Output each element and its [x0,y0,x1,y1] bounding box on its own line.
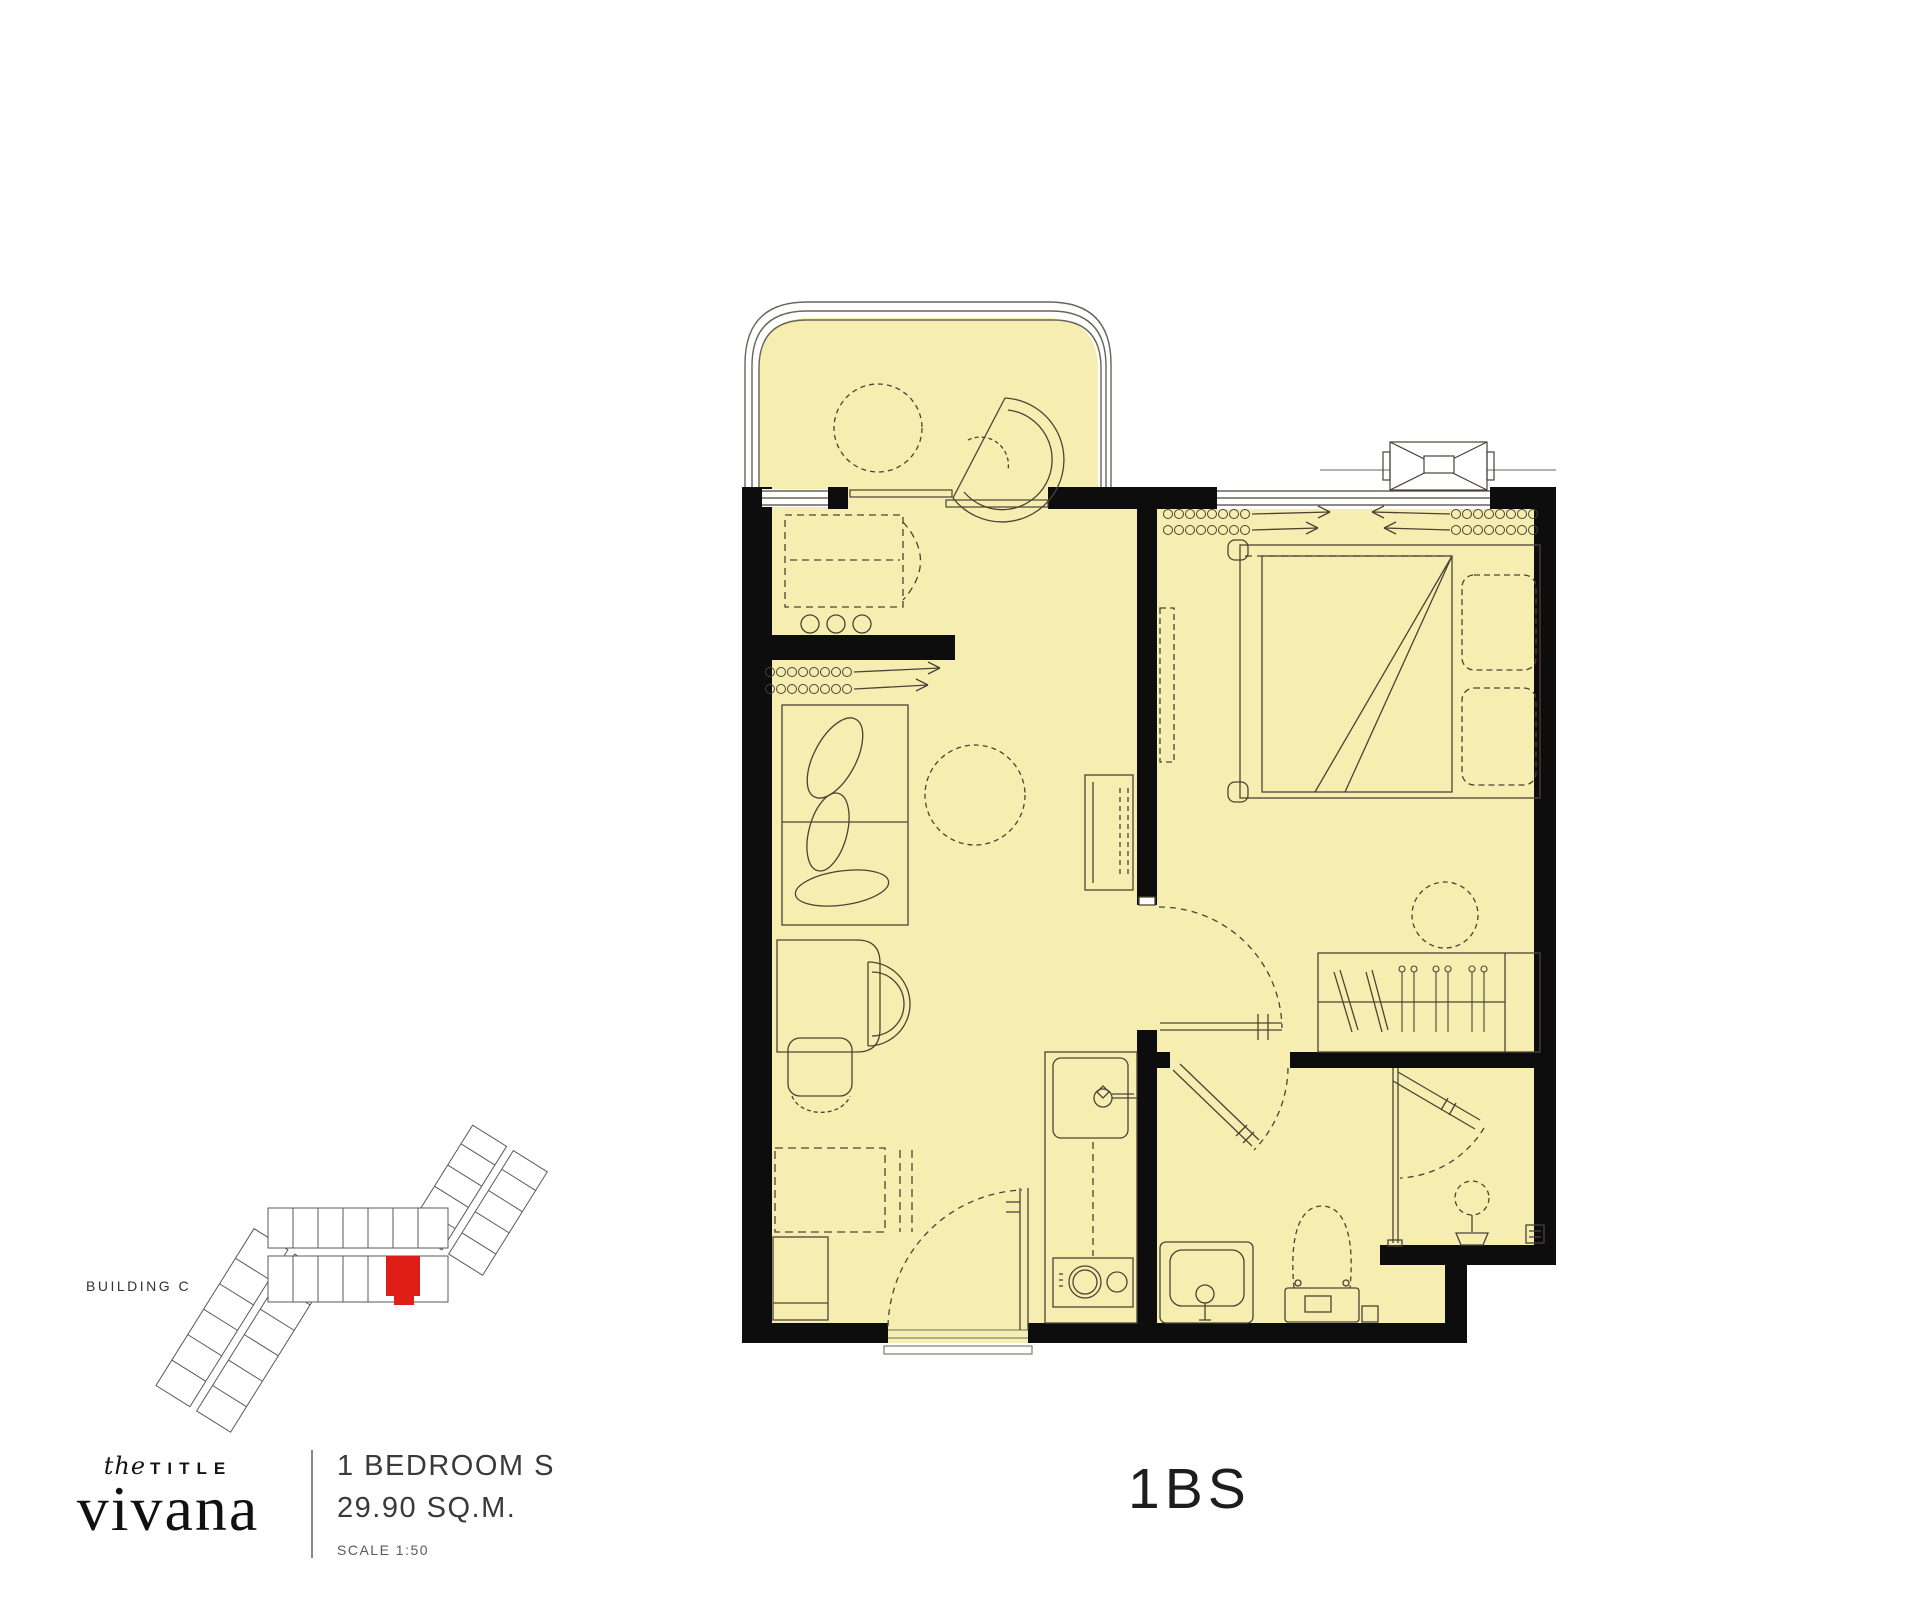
ac-ledge [1320,442,1556,490]
unit-code-label: 1BS [1128,1456,1251,1522]
wall-left [742,487,772,1343]
bedroom-floor [1157,509,1534,1052]
unit-area-label: 29.90 SQ.M. [337,1492,555,1525]
wall-bottom-left [742,1323,888,1343]
living-floor [772,509,1137,1323]
ac-unit-icon [1383,442,1494,490]
unit-scale-label: SCALE 1:50 [337,1542,555,1558]
unit-info: 1 BEDROOM S 29.90 SQ.M. SCALE 1:50 [337,1450,555,1558]
wall-notch-h [1380,1245,1556,1265]
brand-logo: the TITLE vivana [68,1452,268,1538]
footer-divider [311,1450,313,1558]
unit-type-label: 1 BEDROOM S [337,1450,555,1483]
wall-divider-upper [1137,509,1157,905]
brand-name: vivana [68,1480,268,1538]
floor-plan-sheet: BUILDING C the TITLE vivana 1 BEDROOM S … [0,0,1920,1601]
wall-nook [742,635,955,660]
window-left [762,489,828,507]
site-plan-map [156,1125,547,1432]
site-wing-upper [408,1125,547,1275]
floor-plan-drawing [0,0,1920,1601]
wall-bathroom [1290,1052,1534,1068]
wall-top-center [1048,487,1217,509]
bathroom-floor [1157,1068,1534,1323]
wall-bottom-right [1028,1323,1467,1343]
building-label: BUILDING C [86,1278,191,1294]
window-bedroom [1217,489,1490,507]
wall-divider-lower [1137,1030,1157,1323]
wall-right [1534,487,1556,1265]
